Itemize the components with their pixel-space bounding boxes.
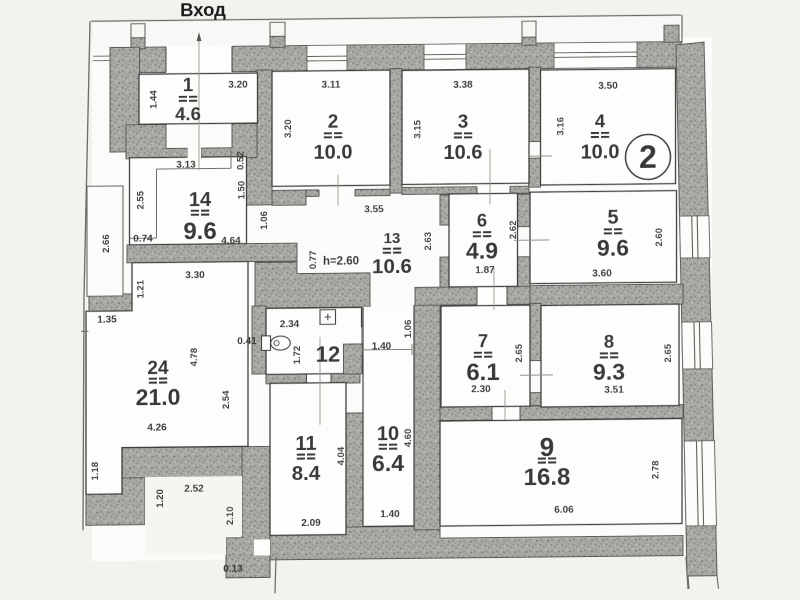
svg-text:2.30: 2.30	[471, 384, 491, 395]
svg-text:6.1: 6.1	[466, 359, 499, 386]
svg-text:10.6: 10.6	[444, 142, 483, 164]
svg-text:3.20: 3.20	[283, 119, 294, 138]
svg-text:8: 8	[604, 331, 614, 352]
svg-text:13: 13	[384, 230, 401, 247]
svg-text:1.18: 1.18	[90, 462, 101, 481]
svg-text:3.13: 3.13	[176, 160, 196, 171]
svg-text:3.11: 3.11	[322, 80, 341, 91]
svg-text:3.60: 3.60	[592, 268, 612, 279]
svg-text:10.0: 10.0	[581, 141, 620, 163]
svg-text:0.52: 0.52	[235, 151, 246, 170]
svg-text:3.55: 3.55	[364, 204, 384, 215]
svg-text:24: 24	[147, 358, 169, 379]
svg-text:1.35: 1.35	[97, 315, 117, 326]
svg-text:2.60: 2.60	[654, 228, 665, 247]
svg-text:2: 2	[639, 139, 657, 175]
svg-text:4.78: 4.78	[189, 348, 200, 367]
svg-text:1.87: 1.87	[475, 265, 495, 276]
svg-text:1.06: 1.06	[259, 211, 270, 230]
svg-text:7: 7	[478, 330, 488, 351]
svg-text:3.51: 3.51	[604, 385, 624, 396]
svg-text:12: 12	[316, 342, 340, 367]
svg-text:3.16: 3.16	[555, 117, 566, 136]
svg-text:3.50: 3.50	[598, 81, 618, 92]
svg-text:9.6: 9.6	[183, 218, 216, 245]
svg-text:4.9: 4.9	[466, 237, 498, 263]
svg-text:2.09: 2.09	[301, 518, 321, 529]
svg-text:2.78: 2.78	[650, 461, 661, 480]
svg-text:10.6: 10.6	[372, 255, 412, 278]
svg-text:3.30: 3.30	[185, 270, 205, 281]
svg-text:2.65: 2.65	[663, 343, 674, 362]
svg-text:0.77: 0.77	[308, 251, 319, 270]
svg-text:4: 4	[595, 110, 606, 131]
svg-text:4.60: 4.60	[403, 429, 414, 448]
svg-text:1.44: 1.44	[148, 90, 159, 109]
svg-text:6.4: 6.4	[372, 450, 404, 476]
svg-text:5: 5	[607, 207, 618, 229]
svg-text:1.40: 1.40	[372, 341, 392, 352]
svg-text:6: 6	[477, 210, 487, 231]
svg-text:1.72: 1.72	[292, 346, 303, 365]
svg-text:4.26: 4.26	[147, 423, 167, 434]
svg-text:16.8: 16.8	[524, 464, 571, 491]
svg-text:4.64: 4.64	[221, 236, 241, 247]
svg-text:4.04: 4.04	[336, 446, 347, 465]
svg-text:2.65: 2.65	[514, 343, 525, 362]
svg-text:4.6: 4.6	[175, 103, 201, 124]
svg-text:2.66: 2.66	[101, 234, 112, 253]
svg-text:Вход: Вход	[180, 0, 226, 20]
svg-text:11: 11	[295, 433, 316, 455]
svg-text:8.4: 8.4	[292, 462, 321, 485]
svg-text:3.38: 3.38	[453, 80, 473, 91]
svg-text:1.40: 1.40	[380, 509, 400, 520]
svg-text:21.0: 21.0	[136, 384, 181, 410]
svg-text:1.21: 1.21	[135, 279, 146, 298]
svg-text:2.10: 2.10	[225, 506, 236, 525]
svg-text:9.3: 9.3	[593, 359, 625, 385]
svg-text:1.50: 1.50	[236, 181, 247, 200]
svg-text:9.6: 9.6	[597, 235, 629, 261]
svg-text:2.62: 2.62	[508, 221, 519, 240]
svg-text:2: 2	[328, 112, 339, 133]
svg-text:10.0: 10.0	[314, 142, 353, 164]
svg-text:1: 1	[183, 75, 194, 96]
svg-text:2.63: 2.63	[423, 232, 434, 251]
svg-text:2.34: 2.34	[280, 319, 300, 330]
svg-text:2.52: 2.52	[184, 484, 204, 495]
svg-text:14: 14	[189, 189, 212, 211]
svg-text:1.20: 1.20	[155, 489, 166, 508]
svg-text:3.20: 3.20	[228, 80, 248, 91]
svg-text:h=2.60: h=2.60	[323, 255, 359, 267]
svg-text:1.06: 1.06	[403, 320, 414, 339]
svg-text:0.13: 0.13	[223, 564, 243, 575]
svg-text:6.06: 6.06	[554, 505, 574, 516]
svg-text:2.55: 2.55	[135, 190, 146, 209]
svg-text:10: 10	[377, 423, 399, 445]
svg-text:2.54: 2.54	[221, 390, 232, 409]
svg-text:0.74: 0.74	[133, 234, 153, 245]
svg-text:3: 3	[458, 112, 469, 133]
svg-text:0.41: 0.41	[237, 336, 257, 347]
svg-text:3.15: 3.15	[412, 119, 423, 138]
